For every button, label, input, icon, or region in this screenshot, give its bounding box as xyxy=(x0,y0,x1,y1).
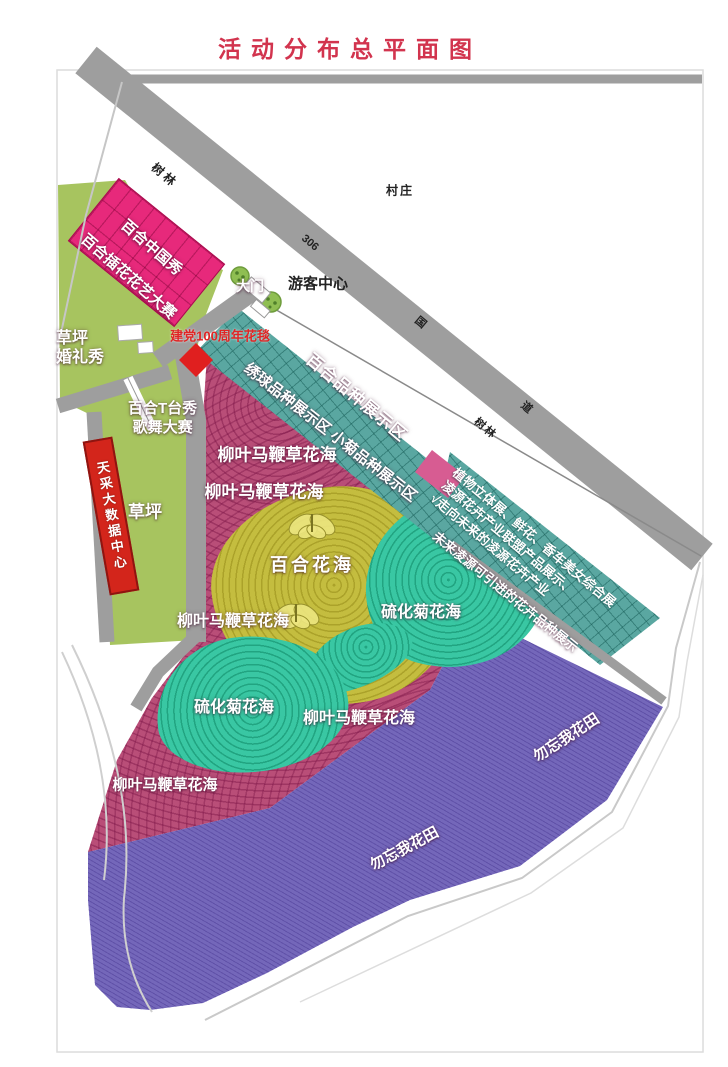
gate-label: 大门 xyxy=(236,276,264,296)
verbena-label-1: 柳叶马鞭草花海 xyxy=(218,441,337,466)
verbena-label-4: 柳叶马鞭草花海 xyxy=(303,704,415,728)
inner-road-vertical xyxy=(184,350,196,642)
lawn-building-1 xyxy=(118,324,143,341)
verbena-label-3: 柳叶马鞭草花海 xyxy=(177,607,289,631)
lawn-building-2 xyxy=(138,341,154,353)
t-stage-dance-label: 百合T台秀 歌舞大赛 xyxy=(128,399,197,437)
footpath-curve-1 xyxy=(62,652,107,880)
lily-sea-label: 百合花海 xyxy=(270,551,354,577)
lawn-wedding-show-label: 草坪 婚礼秀 xyxy=(56,329,104,367)
east-path-line-2 xyxy=(300,575,703,1002)
verbena-label-2: 柳叶马鞭草花海 xyxy=(205,478,324,503)
lawn-label: 草坪 xyxy=(128,498,162,523)
map-frame xyxy=(57,70,703,1052)
village-label: 村庄 xyxy=(386,182,414,199)
lawn-wedding-line1: 草坪 xyxy=(56,329,104,348)
west-boundary-line xyxy=(60,82,122,338)
t-stage-show-label: 百合T台秀 xyxy=(128,399,197,418)
dance-contest-label: 歌舞大赛 xyxy=(128,418,197,437)
inner-road-branch xyxy=(136,636,196,708)
visitor-center-label: 游客中心 xyxy=(288,273,348,294)
verbena-label-5: 柳叶马鞭草花海 xyxy=(112,774,217,795)
lawn-wedding-line2: 婚礼秀 xyxy=(56,348,104,367)
butterfly-icon xyxy=(285,510,338,542)
sulfur-label-2: 硫化菊花海 xyxy=(194,693,274,717)
sulfur-label-1: 硫化菊花海 xyxy=(381,598,461,622)
party-carpet-label: 建党100周年花毯 xyxy=(170,326,270,345)
site-plan-map: 活动分布总平面图 xyxy=(0,0,728,1067)
